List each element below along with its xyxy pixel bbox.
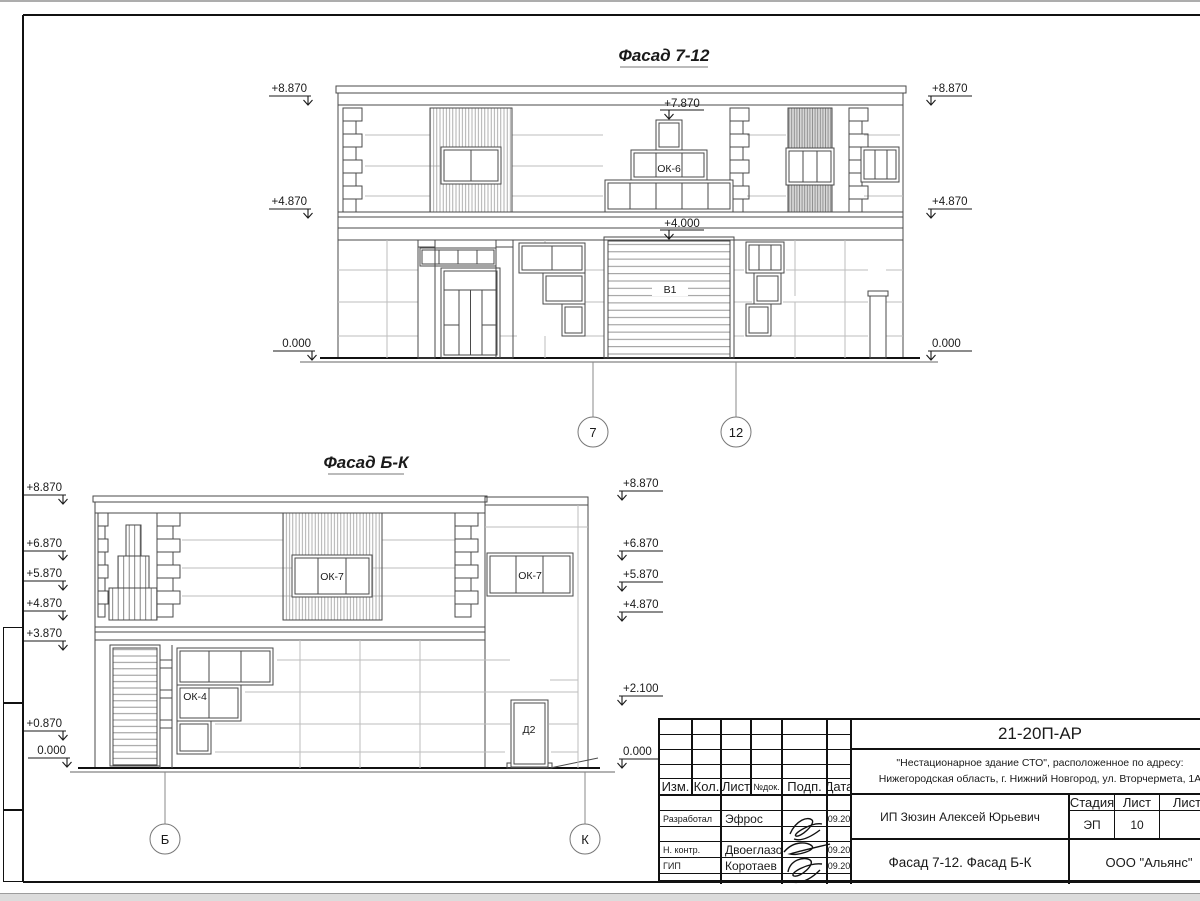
row-razrabotal-name: Эфрос — [722, 811, 783, 827]
client-name: ИП Зюзин Алексей Юрьевич — [852, 795, 1070, 840]
axis-b-label: Б — [161, 832, 170, 847]
col-kol: Кол. — [693, 779, 722, 796]
svg-text:+6.870: +6.870 — [623, 538, 659, 550]
row-razrabotal-date: 09.20 — [828, 811, 852, 827]
axis-12-label: 12 — [729, 425, 743, 440]
stepped-window-left — [519, 243, 585, 336]
sheets-header: Листов — [1160, 795, 1200, 811]
sheet-header: Лист — [1115, 795, 1160, 811]
entrance-door-group — [418, 240, 513, 358]
roller-shutter — [110, 645, 172, 768]
svg-text:+4.870: +4.870 — [272, 196, 308, 208]
project-line2: Нижегородская область, г. Нижний Новгоро… — [879, 772, 1200, 787]
facade-b-k: Фасад Б-К ОК-7 — [70, 453, 615, 772]
mark-bk-left-3870: +3.870 — [24, 628, 68, 650]
project-description: "Нестационарное здание СТО", расположенн… — [852, 750, 1200, 795]
svg-text:+4.000: +4.000 — [664, 218, 700, 230]
window-right-upper — [861, 147, 899, 182]
facade-7-12-title: Фасад 7-12 — [619, 46, 710, 65]
svg-text:+6.870: +6.870 — [27, 538, 63, 550]
svg-text:+0.870: +0.870 — [27, 718, 63, 730]
company-name: ООО "Альянс" — [1070, 840, 1200, 884]
stage-value: ЭП — [1070, 811, 1115, 840]
mark-bk-left-4870: +4.870 — [24, 598, 68, 620]
row-gip-name: Коротаев — [722, 858, 783, 874]
row-razrabotal-role: Разработал — [660, 811, 722, 827]
row-nkontr-date: 09.20 — [828, 842, 852, 858]
svg-text:+8.870: +8.870 — [623, 478, 659, 490]
svg-text:+3.870: +3.870 — [27, 628, 63, 640]
window-ok4-label: ОК-4 — [183, 691, 207, 703]
svg-text:+8.870: +8.870 — [932, 83, 968, 95]
window-ok7-1-label: ОК-7 — [320, 571, 344, 583]
svg-text:+5.870: +5.870 — [27, 568, 63, 580]
door-d2: Д2 — [507, 700, 552, 768]
svg-text:0.000: 0.000 — [37, 745, 66, 757]
mark-bk-left-0870: +0.870 — [24, 718, 68, 740]
row-nkontr-name: Двоеглазов — [722, 842, 783, 858]
svg-text:+8.870: +8.870 — [272, 83, 308, 95]
svg-text:0.000: 0.000 — [623, 746, 652, 758]
svg-text:+4.870: +4.870 — [932, 196, 968, 208]
mark-bk-right-6870: +6.870 — [618, 538, 664, 560]
mark-f712-right-0000: 0.000 — [927, 338, 973, 360]
window-ok7-2-label: ОК-7 — [518, 570, 542, 582]
window-ok6-label: ОК-6 — [657, 163, 681, 175]
door-d2-label: Д2 — [523, 724, 536, 736]
doc-number: 21-20П-АР — [852, 720, 1200, 750]
col-izm: Изм. — [660, 779, 693, 796]
title-block: Изм. Кол. Лист №док. Подп. Дата Разработ… — [658, 718, 1200, 882]
facade-b-k-title: Фасад Б-К — [323, 453, 410, 472]
facade-b-k-axes: Б К — [150, 772, 600, 854]
slat-panel-right — [786, 108, 834, 212]
mark-f712-left-0000: 0.000 — [273, 338, 317, 360]
svg-text:+5.870: +5.870 — [623, 569, 659, 581]
mark-bk-left-6870: +6.870 — [24, 538, 68, 560]
row-gip-role: ГИП — [660, 858, 722, 874]
svg-text:+2.100: +2.100 — [623, 683, 659, 695]
mark-f712-right-4870: +4.870 — [927, 196, 973, 218]
narrow-right-element — [868, 291, 888, 358]
col-podp: Подп. — [783, 779, 828, 796]
mark-bk-right-0000: 0.000 — [618, 746, 664, 768]
row-gip-date: 09.20 — [828, 858, 852, 874]
sheets-value — [1160, 811, 1200, 840]
row-nkontr-role: Н. контр. — [660, 842, 722, 858]
mark-bk-left-8870: +8.870 — [24, 482, 68, 504]
row-nkontr-signature-cell — [783, 842, 828, 858]
row-razrabotal-signature-cell — [783, 811, 828, 827]
col-list: Лист — [722, 779, 752, 796]
drawing-sheet: { "sheet": { "facade_7_12": { "title": "… — [0, 0, 1200, 900]
svg-text:0.000: 0.000 — [282, 338, 311, 350]
project-line1: "Нестационарное здание СТО", расположенн… — [896, 756, 1183, 771]
mark-bk-left-5870: +5.870 — [24, 568, 68, 590]
pyramid-window-left — [109, 525, 157, 620]
roller-gate-b1: В1 — [604, 237, 734, 358]
mark-f712-left-8870: +8.870 — [269, 83, 313, 105]
mark-bk-left-0000: 0.000 — [28, 745, 72, 767]
svg-text:+4.870: +4.870 — [27, 598, 63, 610]
slat-panel-bk: ОК-7 — [283, 513, 382, 620]
mark-f712-mid-4000: +4.000 — [660, 218, 704, 239]
sheet-value: 10 — [1115, 811, 1160, 840]
slat-panel-left — [430, 108, 512, 212]
mark-bk-right-2100: +2.100 — [618, 683, 664, 705]
gate-b1-label: В1 — [664, 284, 677, 296]
stepped-window-right — [746, 242, 784, 336]
mark-f712-mid-7870: +7.870 — [660, 98, 704, 119]
svg-text:+8.870: +8.870 — [27, 482, 63, 494]
window-ok6-pyramid: ОК-6 — [605, 120, 733, 212]
window-ok4-stepped: ОК-4 — [177, 648, 273, 754]
axis-k-label: К — [581, 832, 589, 847]
col-ndok: №док. — [752, 779, 783, 796]
mark-bk-right-5870: +5.870 — [618, 569, 664, 591]
facade-7-12: Фасад 7-12 — [300, 46, 938, 362]
svg-text:+4.870: +4.870 — [623, 599, 659, 611]
mark-bk-right-4870: +4.870 — [618, 599, 664, 621]
sheet-title: Фасад 7-12. Фасад Б-К — [852, 840, 1070, 884]
svg-text:0.000: 0.000 — [932, 338, 961, 350]
stage-header: Стадия — [1070, 795, 1115, 811]
col-data: Дата — [828, 779, 852, 796]
mark-f712-left-4870: +4.870 — [269, 196, 313, 218]
svg-text:+7.870: +7.870 — [664, 98, 700, 110]
mark-bk-right-8870: +8.870 — [618, 478, 664, 500]
window-ok7-2: ОК-7 — [487, 553, 573, 596]
facade-7-12-axes: 7 12 — [578, 362, 751, 447]
row-gip-signature-cell — [783, 858, 828, 874]
mark-f712-right-8870: +8.870 — [927, 83, 973, 105]
axis-7-label: 7 — [589, 425, 596, 440]
